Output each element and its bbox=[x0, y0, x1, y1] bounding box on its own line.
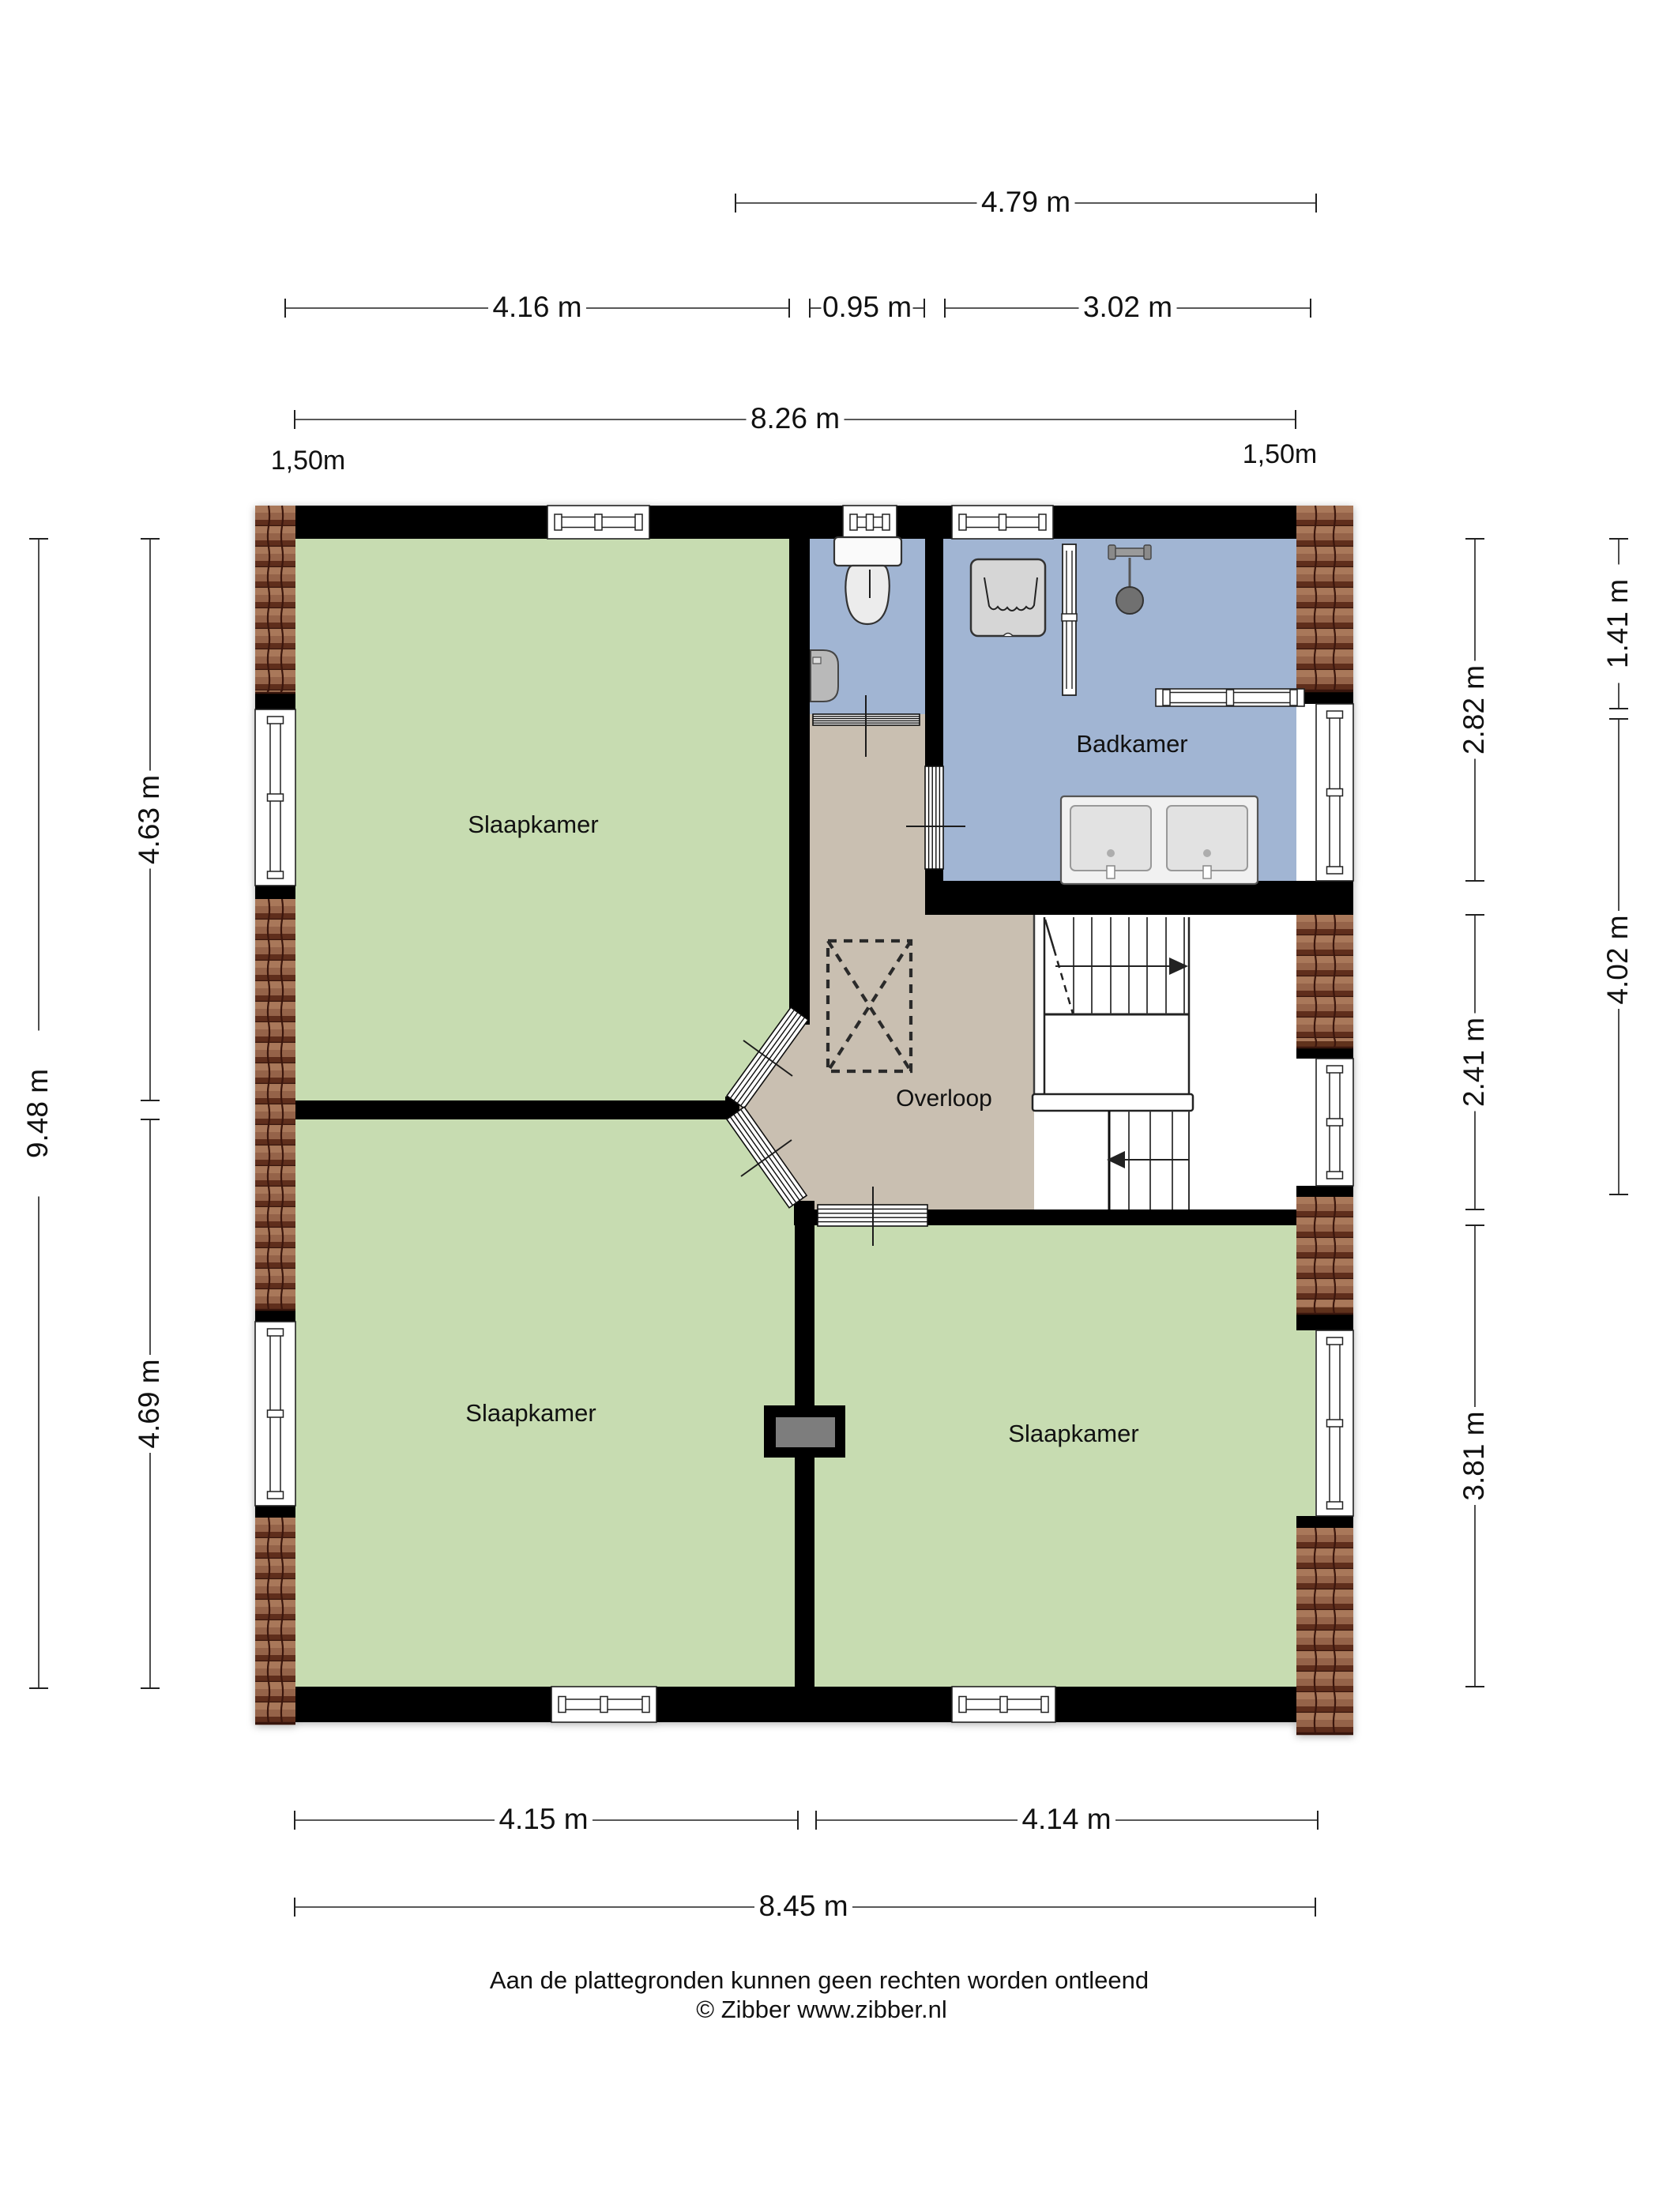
svg-text:2.41 m: 2.41 m bbox=[1458, 1018, 1490, 1107]
svg-text:Slaapkamer: Slaapkamer bbox=[465, 1399, 596, 1427]
svg-text:4.69 m: 4.69 m bbox=[133, 1359, 165, 1448]
svg-text:4.79 m: 4.79 m bbox=[981, 186, 1070, 218]
svg-text:Slaapkamer: Slaapkamer bbox=[468, 811, 598, 838]
svg-text:3.02 m: 3.02 m bbox=[1083, 291, 1172, 323]
svg-text:Slaapkamer: Slaapkamer bbox=[1008, 1420, 1138, 1447]
svg-text:1.41 m: 1.41 m bbox=[1601, 579, 1634, 668]
svg-text:1,50m: 1,50m bbox=[271, 446, 346, 476]
svg-text:Aan de plattegronden kunnen ge: Aan de plattegronden kunnen geen rechten… bbox=[490, 1966, 1149, 1994]
svg-text:8.45 m: 8.45 m bbox=[758, 1890, 848, 1922]
svg-text:4.14 m: 4.14 m bbox=[1021, 1803, 1111, 1835]
svg-text:1,50m: 1,50m bbox=[1243, 439, 1318, 469]
svg-text:Overloop: Overloop bbox=[896, 1085, 992, 1112]
svg-text:4.15 m: 4.15 m bbox=[498, 1803, 588, 1835]
svg-text:4.16 m: 4.16 m bbox=[492, 291, 581, 323]
svg-text:4.63 m: 4.63 m bbox=[133, 775, 165, 864]
svg-text:9.48 m: 9.48 m bbox=[21, 1069, 54, 1158]
svg-text:Badkamer: Badkamer bbox=[1076, 730, 1187, 758]
svg-text:© Zibber www.zibber.nl: © Zibber www.zibber.nl bbox=[696, 1996, 946, 2023]
svg-text:0.95 m: 0.95 m bbox=[822, 291, 912, 323]
svg-text:4.02 m: 4.02 m bbox=[1601, 915, 1634, 1004]
svg-text:2.82 m: 2.82 m bbox=[1458, 665, 1490, 754]
svg-text:3.81 m: 3.81 m bbox=[1458, 1411, 1490, 1500]
svg-text:8.26 m: 8.26 m bbox=[750, 402, 840, 434]
